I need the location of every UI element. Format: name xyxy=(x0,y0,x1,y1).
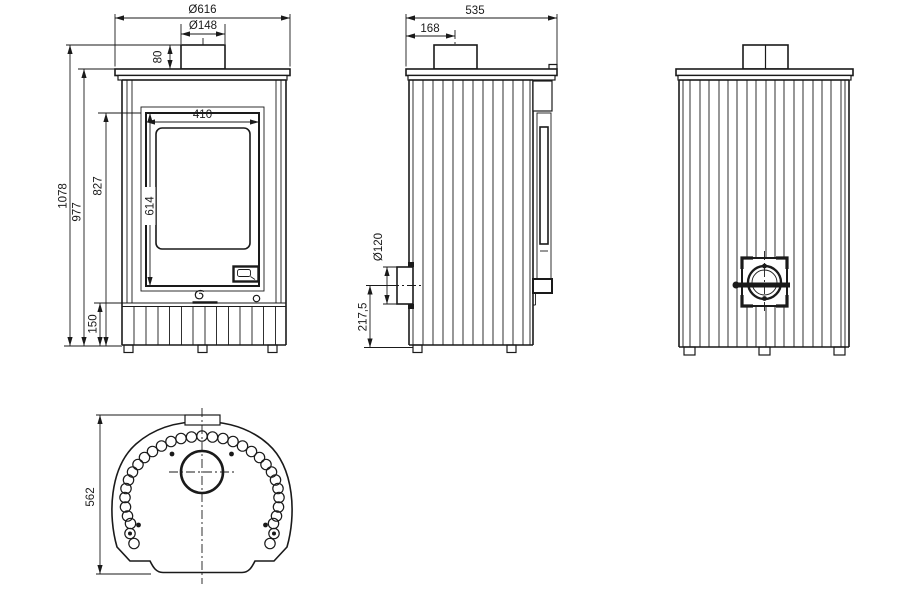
back-view xyxy=(676,45,853,355)
side-air-inlet-stub xyxy=(390,262,422,309)
dim-label-flue-from-back: 168 xyxy=(420,23,439,35)
top-air-inlet-stub xyxy=(185,415,220,425)
front-view: Ø616 Ø148 80 410 614 1078 977 827 150 xyxy=(58,4,291,353)
dim-label-door-height: 614 xyxy=(145,196,157,216)
front-feet xyxy=(124,345,277,353)
dim-label-plate-depth: 562 xyxy=(85,487,97,506)
door-glass-window xyxy=(156,128,250,249)
top-view: 562 xyxy=(85,408,292,584)
dim-label-air-inlet-height: 217,5 xyxy=(358,303,370,332)
air-control-knob xyxy=(253,295,259,301)
back-feet xyxy=(684,347,845,355)
dim-label-height-to-plate: 977 xyxy=(72,202,84,221)
front-flue-collar xyxy=(181,45,225,69)
dim-label-base-height: 150 xyxy=(88,314,100,333)
dim-label-collar-height: 80 xyxy=(153,51,165,64)
side-body xyxy=(409,80,533,345)
stove-technical-drawing: Ø616 Ø148 80 410 614 1078 977 827 150 xyxy=(0,0,900,590)
dim-label-total-height: 1078 xyxy=(58,183,70,209)
back-top-plate xyxy=(676,69,853,76)
front-base xyxy=(122,303,286,345)
dim-label-top-plate-diameter: Ø616 xyxy=(188,4,216,16)
dim-label-height-to-door-top: 827 xyxy=(93,176,105,195)
side-top-plate xyxy=(406,69,557,76)
back-air-inlet-damper xyxy=(733,251,791,314)
technical-drawing-page: Ø616 Ø148 80 410 614 1078 977 827 150 xyxy=(0,0,900,590)
dim-label-air-inlet-diameter: Ø120 xyxy=(373,233,385,261)
dim-label-flue-diameter: Ø148 xyxy=(189,20,217,32)
side-flue-collar xyxy=(434,45,477,69)
dim-label-door-width: 410 xyxy=(193,109,212,121)
front-top-plate xyxy=(115,69,290,76)
side-feet xyxy=(413,345,516,353)
side-door-profile xyxy=(533,81,552,305)
door-handle xyxy=(234,267,259,282)
brand-logo xyxy=(193,291,218,303)
side-view: 535 168 Ø120 217,5 xyxy=(358,5,558,353)
dim-label-depth: 535 xyxy=(465,5,484,17)
stove-door-frame xyxy=(141,107,264,291)
